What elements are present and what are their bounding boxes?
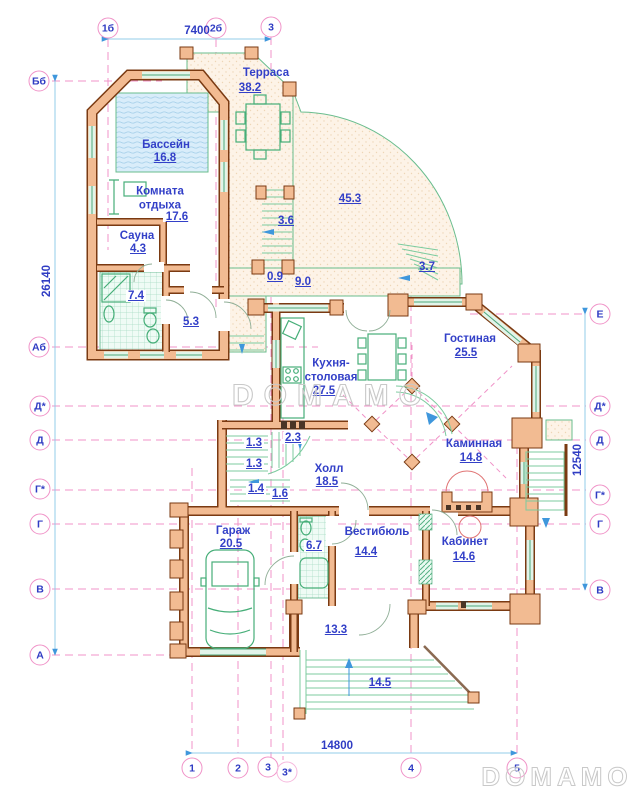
room-area-fireplace-room: 14.8	[460, 452, 482, 464]
room-area-garage: 20.5	[220, 538, 242, 550]
axis-right-gs: Г*	[590, 485, 611, 506]
area-porch: 13.3	[325, 624, 347, 636]
bathroom2-tile	[298, 516, 330, 598]
area-terrace-large: 45.3	[339, 193, 361, 205]
axis-top-3: 3	[261, 17, 282, 38]
area-walk-length: 9.0	[295, 276, 311, 288]
room-area-vestibule: 14.4	[355, 546, 377, 558]
room-name-vestibule: Вестибюль	[345, 526, 410, 540]
axis-left-ds: Д*	[30, 396, 51, 417]
room-name-hall: Холл	[315, 463, 344, 477]
dim-bottom: 14800	[321, 740, 353, 752]
axis-left-ab: Аб	[29, 337, 50, 358]
room-name-restroom: Комната отдыха	[136, 185, 184, 212]
room-name-pool: Бассейн	[142, 139, 190, 153]
room-area-living: 25.5	[455, 347, 477, 359]
floor-plan-canvas: 1б 2б 3 1 2 3 3* 4 5 Бб Аб Д* Д Г* Г В А…	[0, 0, 636, 800]
room-name-sauna: Сауна	[118, 230, 157, 244]
axis-bottom-1: 1	[182, 758, 203, 779]
area-bath-main: 7.4	[126, 290, 146, 302]
axis-top-1b: 1б	[98, 18, 119, 39]
area-entry-steps: 14.5	[369, 677, 391, 689]
area-room-53: 5.3	[183, 316, 199, 328]
watermark-center: DOMAMO	[232, 379, 432, 413]
room-area-restroom: 17.6	[166, 211, 188, 223]
room-name-living: Гостиная	[444, 333, 496, 347]
dim-left: 26140	[41, 265, 53, 297]
room-area-hall: 18.5	[316, 476, 338, 488]
area-bath-67: 6.7	[304, 540, 324, 552]
axis-right-e: Е	[590, 304, 611, 325]
axis-left-bb: Бб	[29, 71, 50, 92]
car	[201, 550, 259, 648]
room-area-terrace: 38.2	[239, 82, 261, 94]
axis-bottom-3s: 3*	[277, 762, 298, 783]
axis-left-v: В	[30, 579, 51, 600]
bathroom-tile	[100, 272, 164, 350]
room-area-study: 14.6	[453, 551, 475, 563]
room-area-sauna: 4.3	[128, 243, 148, 255]
watermark-corner: DOMAMO	[481, 762, 632, 793]
axis-bottom-3: 3	[258, 757, 279, 778]
axis-left-d: Д	[30, 430, 51, 451]
room-name-garage: Гараж	[216, 525, 250, 539]
axis-bottom-4: 4	[401, 758, 422, 779]
area-steps-left: 3.6	[278, 215, 294, 227]
area-stair-23: 2.3	[283, 432, 303, 444]
area-stair-13b: 1.3	[244, 458, 264, 470]
room-name-terrace: Терраса	[243, 67, 289, 81]
axis-bottom-2: 2	[228, 758, 249, 779]
pool-house	[92, 75, 230, 355]
fireplace	[442, 471, 492, 538]
area-stair-14: 1.4	[246, 483, 266, 495]
room-name-study: Кабинет	[442, 536, 489, 550]
dim-right: 12540	[572, 444, 584, 476]
axis-right-ds: Д*	[590, 396, 611, 417]
axis-right-g: Г	[590, 514, 611, 535]
dim-top: 7400	[184, 25, 210, 37]
area-walk-width: 0.9	[267, 271, 283, 283]
area-stair-13a: 1.3	[244, 437, 264, 449]
axis-right-v: В	[590, 580, 611, 601]
axis-left-a: А	[30, 645, 51, 666]
axis-left-g: Г	[30, 514, 51, 535]
room-area-pool: 16.8	[154, 152, 176, 164]
area-stair-16: 1.6	[270, 488, 290, 500]
axis-right-d: Д	[590, 430, 611, 451]
axis-left-gs: Г*	[30, 479, 51, 500]
room-name-fireplace-room: Каминная	[446, 438, 502, 452]
area-steps-right: 3.7	[419, 261, 435, 273]
